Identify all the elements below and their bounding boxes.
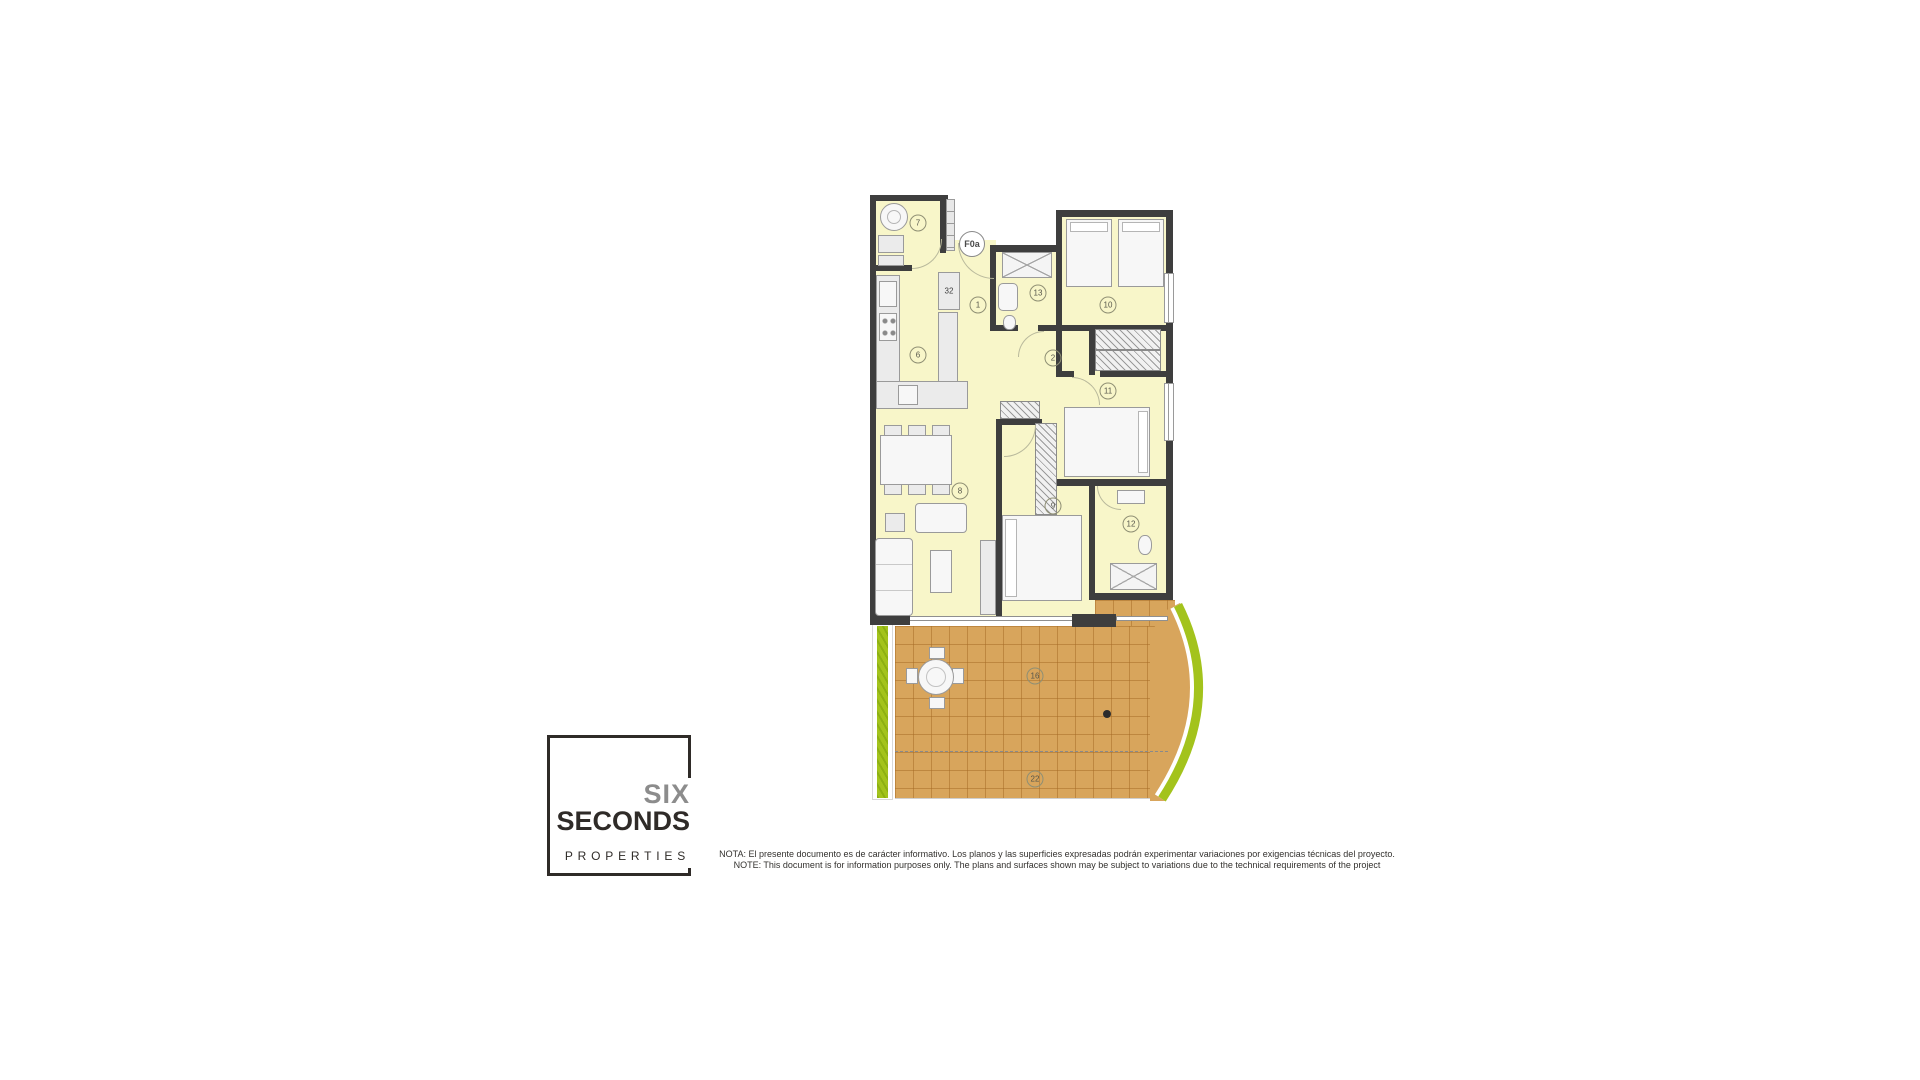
unit-label: F0a: [959, 231, 985, 257]
room-label-laundry: 7: [910, 215, 927, 232]
kitchen-hob: [879, 313, 897, 341]
room-label-living: 8: [952, 483, 969, 500]
terrace-table-inner: [926, 667, 946, 687]
terrace-chair: [929, 647, 945, 659]
terrace-left-planter: [877, 626, 888, 798]
wardrobe: [1095, 329, 1161, 350]
terrace-chair: [906, 668, 918, 684]
wardrobe: [1000, 401, 1040, 419]
terrace-chair: [929, 697, 945, 709]
wardrobe: [1095, 350, 1161, 371]
room-label-kitchen: 6: [910, 347, 927, 364]
side-table: [885, 513, 905, 532]
coffee-table: [930, 550, 952, 593]
sofa-three-seat: [875, 538, 913, 616]
laundry-shelving: [946, 199, 955, 251]
toilet: [1003, 315, 1016, 330]
terrace-curved-planter: [1140, 593, 1215, 809]
kitchen-peninsula: [876, 381, 968, 409]
logo-word-seconds: SECONDS: [500, 808, 690, 835]
disclaimer-english: NOTE: This document is for information p…: [716, 860, 1398, 871]
terrace-label-lower: 22: [1027, 771, 1044, 788]
bathtub: [998, 283, 1018, 311]
bedroom-glass-door: [1116, 616, 1168, 621]
screenshot-root: { "colors": { "wall": "#3e3e3e", "room":…: [0, 0, 1920, 1080]
kitchen-tall-cabinet: [938, 312, 958, 382]
toilet: [1138, 535, 1152, 555]
shower-tray: [1110, 563, 1157, 590]
logo-word-properties: PROPERTIES: [500, 850, 690, 862]
room-label-master: 9: [1045, 498, 1062, 515]
washing-machine-drum: [887, 210, 901, 224]
room-label-bed1: 10: [1100, 297, 1117, 314]
living-room-glass-door: [908, 616, 1074, 621]
room-label-ensuite: 12: [1123, 516, 1140, 533]
laundry-shelf: [878, 255, 904, 266]
shaft-label: 32: [945, 287, 954, 296]
peninsula-sink: [898, 385, 918, 405]
logo-word-six: SIX: [500, 781, 690, 808]
room-label-bed2: 11: [1100, 383, 1117, 400]
bedroom-1-window: [1164, 273, 1174, 323]
terrace-label-upper: 16: [1027, 668, 1044, 685]
laundry-cabinet: [878, 235, 904, 253]
shower-tray: [1002, 252, 1052, 278]
room-label-hall2: 2: [1045, 350, 1062, 367]
tv-unit: [980, 540, 996, 615]
room-label-bath1: 13: [1030, 285, 1047, 302]
floor-plan: 32 7 1 6 13 10 2 11 8 9 12 16: [870, 195, 1215, 810]
room-label-hall1: 1: [970, 297, 987, 314]
kitchen-sink: [879, 281, 897, 307]
dining-table: [880, 435, 952, 485]
vanity-sink: [1117, 490, 1145, 504]
disclaimer-spanish: NOTA: El presente documento es de caráct…: [716, 849, 1398, 860]
terrace-drain-dot: [1103, 710, 1111, 718]
disclaimer-note: NOTA: El presente documento es de caráct…: [716, 849, 1398, 871]
sofa-two-seat: [915, 503, 967, 533]
bedroom-2-window: [1164, 383, 1174, 441]
terrace-dashed-line: [895, 751, 1168, 752]
